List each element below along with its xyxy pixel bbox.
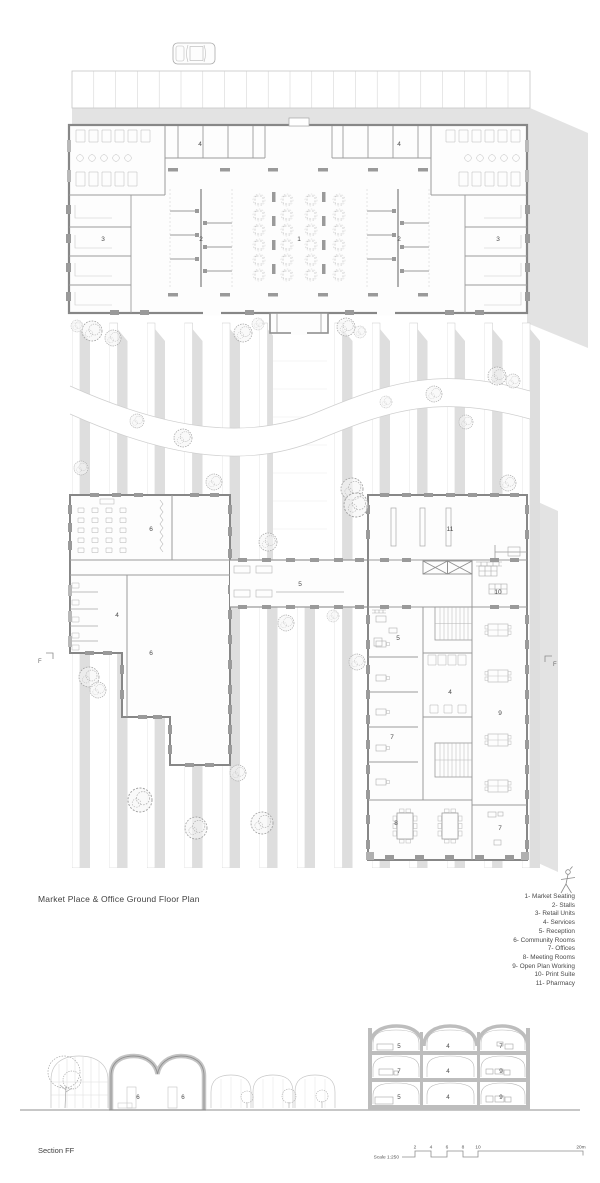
room-number-label: 8 (394, 820, 398, 827)
scale-ticks: 24681020m (414, 1145, 586, 1151)
room-number-label: 5 (396, 635, 400, 642)
room-number-label: 2 (397, 236, 401, 243)
legend-item: 2- Stalls (512, 902, 575, 911)
room-number-label: 10 (494, 589, 502, 596)
section-room-label: 5 (397, 1043, 401, 1050)
legend-item: 10- Print Suite (512, 971, 575, 980)
section-room-label: 5 (397, 1094, 401, 1101)
legend: 1- Market Seating2- Stalls3- Retail Unit… (512, 893, 575, 989)
legend-item: 9- Open Plan Working (512, 963, 575, 972)
car-icon (173, 43, 215, 64)
architectural-sheet: F F 443212361151045649787 (0, 0, 600, 1183)
room-number-label: 4 (448, 689, 452, 696)
scale-tick-label: 6 (446, 1145, 449, 1151)
scale-bar: Scale 1:250 24681020m (374, 1145, 586, 1161)
room-number-label: 4 (115, 612, 119, 619)
section-drawing: 66547749549 (20, 1026, 580, 1110)
section-room-label: 6 (136, 1094, 140, 1101)
scale-tick-label: 20m (576, 1145, 585, 1151)
section-room-label: 4 (446, 1068, 450, 1075)
room-number-label: 5 (298, 581, 302, 588)
legend-item: 7- Offices (512, 945, 575, 954)
legend-item: 4- Services (512, 919, 575, 928)
room-number-label: 4 (397, 141, 401, 148)
floor-plan-drawing: F F 443212361151045649787 (0, 0, 600, 1183)
legend-item: 11- Pharmacy (512, 980, 575, 989)
room-number-label: 3 (496, 236, 500, 243)
market-hall (66, 118, 530, 335)
room-number-label: 6 (149, 526, 153, 533)
room-number-label: 6 (149, 650, 153, 657)
section-room-label: 9 (499, 1068, 503, 1075)
section-room-label: 4 (446, 1094, 450, 1101)
scale-tick-label: 10 (475, 1145, 481, 1151)
legend-item: 6- Community Rooms (512, 937, 575, 946)
legend-item: 8- Meeting Rooms (512, 954, 575, 963)
office-building (366, 493, 529, 860)
page-title: Market Place & Office Ground Floor Plan (38, 894, 200, 904)
parking-area (72, 71, 530, 108)
section-room-label: 4 (446, 1043, 450, 1050)
room-number-label: 11 (447, 526, 454, 533)
section-title: Section FF (38, 1146, 74, 1155)
room-number-label: 7 (498, 825, 502, 832)
section-marker-left: F (38, 659, 42, 665)
section-room-label: 9 (499, 1094, 503, 1101)
legend-item: 5- Reception (512, 928, 575, 937)
room-number-label: 1 (297, 236, 301, 243)
legend-item: 3- Retail Units (512, 910, 575, 919)
room-number-label: 3 (101, 236, 105, 243)
legend-item: 1- Market Seating (512, 893, 575, 902)
room-number-label: 9 (498, 710, 502, 717)
scale-tick-label: 4 (430, 1145, 433, 1151)
room-number-label: 7 (390, 734, 394, 741)
section-room-label: 7 (397, 1068, 401, 1075)
scale-figure-icon (561, 867, 575, 894)
room-number-label: 4 (198, 141, 202, 148)
section-room-label: 7 (499, 1043, 503, 1050)
scale-label: Scale 1:250 (374, 1155, 400, 1161)
scale-tick-label: 8 (462, 1145, 465, 1151)
section-marker-right: F (553, 662, 557, 668)
room-number-label: 2 (199, 236, 203, 243)
scale-tick-label: 2 (414, 1145, 417, 1151)
section-room-label: 6 (181, 1094, 185, 1101)
